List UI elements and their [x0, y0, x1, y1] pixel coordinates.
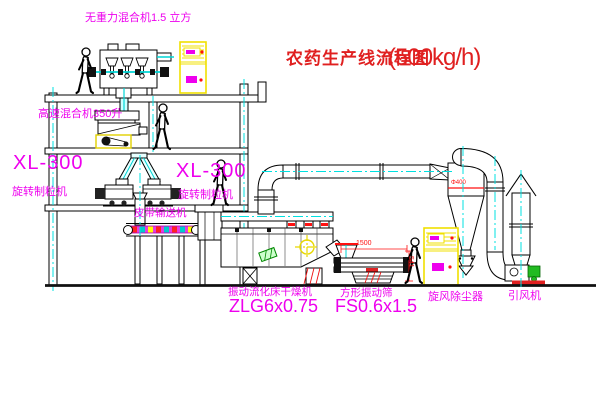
label-gravity-mixer: 无重力混合机1.5 立方 [85, 13, 191, 24]
induced-draft-fan [505, 255, 545, 285]
dryer-feed-hopper [195, 205, 223, 285]
gravity-free-mixer [88, 44, 174, 114]
label-cyclone: 旋风除尘器 [428, 292, 483, 303]
splitter-chute [118, 153, 160, 181]
label-fan: 引风机 [508, 291, 541, 302]
dim-sieve-length: 1500 [356, 240, 372, 247]
dim-sieve-height: 541 [407, 256, 414, 268]
process-flow-diagram: 农药生产线流程图 (500kg/h) 无重力混合机1.5 立方 高速混合机350… [0, 0, 600, 403]
label-granulator-right-name: 旋转制粒机 [178, 190, 233, 201]
vibrating-sieve [334, 257, 410, 283]
label-granulator-left-name: 旋转制粒机 [12, 187, 67, 198]
control-cabinet-2 [424, 228, 458, 285]
belt-conveyor [124, 224, 201, 285]
label-sieve-model: FS0.6x1.5 [335, 297, 417, 315]
control-cabinet-1 [180, 42, 206, 93]
label-belt-conveyor: 皮带输送机 [134, 208, 187, 219]
label-high-speed-mixer: 高速混合机350升 [38, 109, 122, 120]
label-granulator-left-model: XL-300 [13, 153, 84, 173]
diagram-title-capacity: (500kg/h) [388, 46, 480, 70]
granulator-left [95, 179, 135, 206]
label-granulator-right-model: XL-300 [176, 161, 247, 181]
dim-cyclone-diameter: Φ400 [451, 180, 466, 186]
label-dryer-model: ZLG6x0.75 [229, 297, 318, 315]
